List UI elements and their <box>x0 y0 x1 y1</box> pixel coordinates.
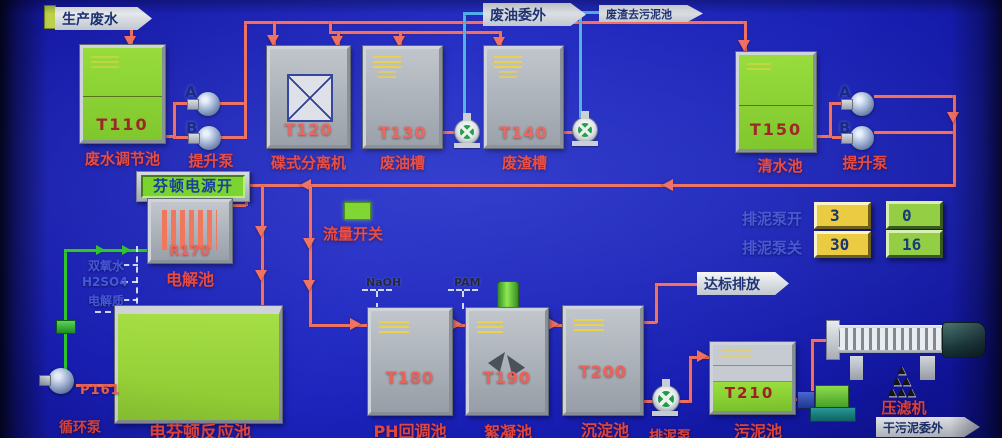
banner-label: 达标排放 <box>704 274 760 294</box>
pipe <box>244 21 247 139</box>
actual-value: 16 <box>902 235 921 254</box>
filter-press-drive-icon <box>942 322 986 358</box>
flow-arrow-right <box>350 318 361 330</box>
pump-impeller <box>658 391 674 407</box>
pipe-green <box>64 250 67 372</box>
flow-arrow-down <box>303 280 315 291</box>
chemical-h2so4-label: H2SO4 <box>82 275 128 289</box>
pump-base <box>454 143 480 148</box>
pipe <box>442 131 456 134</box>
tank-name-r170: 电解池 <box>150 266 230 290</box>
sludge-pump-off-setpoint[interactable]: 30 <box>814 231 871 258</box>
sludge-pump-off-actual: 16 <box>886 230 943 258</box>
banner-pole <box>44 5 56 29</box>
pump-impeller <box>460 125 474 139</box>
tank-id-t120: T120 <box>267 120 350 139</box>
tank-t180 <box>368 308 452 415</box>
pump-stub <box>463 113 471 121</box>
tank-id-t210: T210 <box>710 384 789 402</box>
pipe-blue <box>579 12 582 118</box>
tank-id-t150: T150 <box>736 120 816 139</box>
fenton-reactor-tank <box>115 306 282 423</box>
lift-pump-a-right-icon[interactable] <box>850 92 874 116</box>
tank-t200 <box>563 306 643 415</box>
lift-pump-b-right-icon[interactable] <box>850 126 874 150</box>
dosing-line <box>136 246 138 314</box>
lift-pump-right-label: 提升泵 <box>835 152 895 173</box>
level-divider <box>713 365 792 366</box>
waste-residue-pump-icon[interactable] <box>573 118 597 142</box>
sludge-pile-icon: ▲ ▲▲ ▲▲▲ <box>876 364 928 397</box>
agitator-motor-icon <box>497 281 519 311</box>
level-divider <box>83 96 162 97</box>
actual-value: 0 <box>902 206 912 225</box>
pipe <box>173 102 176 139</box>
chemical-pam-label: PAM <box>454 276 481 289</box>
tank-t190 <box>466 308 548 415</box>
pump-impeller <box>578 123 592 137</box>
filter-press-plates <box>840 328 942 350</box>
flow-arrow-left <box>662 179 673 191</box>
sludge-discharge-pump-icon[interactable] <box>653 386 679 412</box>
banner-label: 废渣去污泥池 <box>606 6 672 22</box>
banner-label: 生产废水 <box>62 9 118 29</box>
flow-arrow-down <box>255 270 267 281</box>
tank-t210 <box>710 342 795 414</box>
level-divider <box>739 105 813 106</box>
pump-stub <box>188 133 200 144</box>
tank-name-t200: 沉淀池 <box>575 417 635 438</box>
tank-id-t140: T140 <box>484 123 563 142</box>
lift-pump-left-label: 提升泵 <box>181 150 241 171</box>
pipe <box>689 357 692 402</box>
tank-name-t210: 污泥池 <box>726 418 790 438</box>
flow-arrow-down <box>255 226 267 237</box>
filter-press-label: 压滤机 <box>876 397 932 418</box>
pipe-return-line <box>246 184 955 187</box>
banner-residue-to-sludge: 废渣去污泥池 <box>599 5 703 22</box>
waste-oil-pump-icon[interactable] <box>455 120 479 144</box>
flow-arrow-down <box>267 35 279 46</box>
level-marks <box>574 319 604 333</box>
flow-arrow-down <box>738 40 750 51</box>
hmi-wastewater-screen: 生产废水 废油委外 废渣去污泥池 达标排放 干污泥委外 T110 废水调节池 A… <box>0 0 1002 438</box>
sludge-pump-on-setpoint[interactable]: 3 <box>814 202 871 229</box>
pump-stub <box>841 133 853 144</box>
level-marks <box>494 56 522 68</box>
flow-arrow-green <box>96 245 105 255</box>
level-marks <box>373 56 401 68</box>
banner-compliant-discharge: 达标排放 <box>697 272 789 295</box>
banner-label: 废油委外 <box>490 5 546 25</box>
pump-stub <box>39 375 51 386</box>
flow-arrow-down <box>947 112 959 123</box>
flow-switch-label: 流量开关 <box>318 223 388 244</box>
level-marks <box>91 56 119 68</box>
tank-name-t110: 废水调节池 <box>75 148 170 169</box>
fenton-power-button-label: 芬顿电源开 <box>141 175 245 198</box>
level-marks <box>499 71 517 79</box>
banner-dry-sludge-out: 干污泥委外 <box>876 417 980 437</box>
flow-switch-indicator <box>344 202 371 220</box>
flow-arrow-green <box>122 245 131 255</box>
pipe <box>261 186 264 308</box>
pipe <box>232 204 246 207</box>
valve-icon[interactable] <box>56 320 76 334</box>
tank-name-t130: 废油槽 <box>375 152 430 173</box>
pipe <box>329 31 502 34</box>
dosing-line <box>376 291 378 309</box>
pump-stub <box>841 99 853 110</box>
level-marks <box>379 321 409 335</box>
pipe <box>953 95 956 187</box>
flow-arrow-right <box>451 318 462 330</box>
chemical-naoh-label: NaOH <box>366 276 401 289</box>
tank-name-t120: 碟式分离机 <box>260 152 357 173</box>
circulation-pump-icon[interactable] <box>48 368 74 394</box>
tank-id-t200: T200 <box>563 362 643 381</box>
tank-id-r170: R170 <box>148 244 232 259</box>
level-marks <box>721 350 751 360</box>
filter-press-leg <box>850 356 863 380</box>
pump-id-p161: P161 <box>80 383 121 398</box>
setpoint-value: 3 <box>830 206 840 225</box>
dosing-line <box>462 291 464 309</box>
sludge-pump-off-label: 排泥泵关 <box>742 237 802 258</box>
dosing-line <box>124 264 138 266</box>
pipe <box>874 131 955 134</box>
fenton-power-button[interactable]: 芬顿电源开 <box>136 171 250 202</box>
tank-id-t110: T110 <box>80 115 165 134</box>
pipe <box>219 136 246 139</box>
pipe <box>309 186 312 326</box>
pipe <box>655 283 658 323</box>
screw-pump-base <box>810 407 856 422</box>
tank-id-t130: T130 <box>363 123 442 142</box>
pump-base <box>652 411 678 416</box>
flow-arrow-right <box>548 318 559 330</box>
level-marks <box>477 321 503 333</box>
tank-name-t150: 清水池 <box>745 155 815 176</box>
circulation-pump-label: 循环泵 <box>50 417 110 437</box>
tank-name-t180: PH回调池 <box>363 418 457 438</box>
dosing-line <box>124 299 138 301</box>
banner-production-wastewater: 生产废水 <box>55 7 152 30</box>
sludge-pump-on-label: 排泥泵开 <box>742 208 802 229</box>
level-marks <box>378 71 396 79</box>
flow-arrow-right <box>697 350 708 362</box>
pump-stub <box>581 111 589 119</box>
sludge-discharge-pump-label: 排泥泵 <box>642 426 698 438</box>
tank-name-t140: 废渣槽 <box>497 152 552 173</box>
banner-waste-oil-out: 废油委外 <box>483 3 586 26</box>
pump-base <box>572 141 598 146</box>
tank-id-t190: T190 <box>466 368 548 387</box>
sludge-pump-on-actual: 0 <box>886 201 943 229</box>
separator-icon <box>287 74 333 122</box>
fenton-reactor-name: 电芬顿反应池 <box>140 418 260 438</box>
pipe <box>829 102 832 138</box>
setpoint-value: 30 <box>830 235 849 254</box>
flow-arrow-down <box>303 238 315 249</box>
pipe <box>874 95 955 98</box>
banner-label: 干污泥委外 <box>883 419 943 436</box>
pipe <box>219 102 246 105</box>
pipe-blue <box>463 13 466 120</box>
pump-stub <box>187 99 199 110</box>
pump-stub <box>662 379 670 387</box>
lift-pump-b-icon[interactable] <box>197 126 221 150</box>
pipe <box>655 283 698 286</box>
chemical-h2o2-label: 双氧水 <box>88 257 124 274</box>
tank-name-t190: 絮凝池 <box>478 419 538 438</box>
lift-pump-a-icon[interactable] <box>196 92 220 116</box>
screw-pump-icon[interactable] <box>815 385 849 409</box>
level-marks <box>747 63 771 73</box>
pipe-blue <box>463 12 485 15</box>
tank-id-t180: T180 <box>368 368 452 387</box>
